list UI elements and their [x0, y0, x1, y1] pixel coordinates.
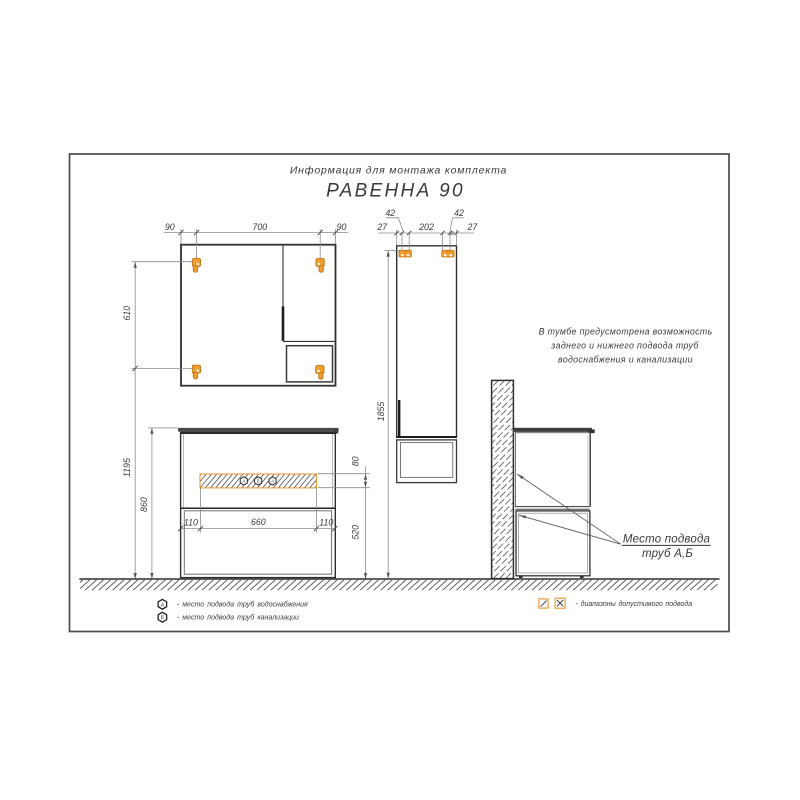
svg-text:- место подвода труб водоснаб: - место подвода труб водоснабжения [177, 601, 308, 609]
svg-text:610: 610 [122, 306, 132, 321]
svg-text:42: 42 [454, 208, 464, 218]
svg-text:- место подвода труб канализа: - место подвода труб канализации [177, 614, 299, 622]
svg-text:заднего и нижнего подвода труб: заднего и нижнего подвода труб [550, 340, 699, 350]
svg-text:520: 520 [351, 525, 361, 540]
svg-text:труб А,Б: труб А,Б [642, 548, 693, 560]
svg-text:Б: Б [161, 615, 165, 621]
svg-text:860: 860 [139, 497, 149, 512]
svg-text:110: 110 [184, 517, 198, 527]
svg-text:РАВЕННА 90: РАВЕННА 90 [326, 181, 465, 202]
svg-text:В тумбе предусмотрена возможно: В тумбе предусмотрена возможность [539, 327, 713, 337]
svg-text:27: 27 [467, 222, 479, 232]
svg-text:202: 202 [418, 222, 434, 232]
svg-text:700: 700 [252, 222, 267, 232]
svg-text:Информация для монтажа комплек: Информация для монтажа комплекта [290, 165, 507, 177]
svg-text:27: 27 [376, 222, 388, 232]
svg-text:А: А [241, 479, 245, 484]
svg-text:Место подвода: Место подвода [623, 534, 710, 546]
svg-text:110: 110 [319, 517, 333, 527]
svg-text:1195: 1195 [122, 458, 132, 477]
svg-text:42: 42 [385, 208, 395, 218]
svg-text:1855: 1855 [376, 402, 386, 422]
svg-text:660: 660 [251, 517, 266, 527]
svg-text:90: 90 [165, 222, 175, 232]
svg-text:- диапазоны допустимого подво: - диапазоны допустимого подвода [576, 600, 693, 608]
svg-text:Б: Б [257, 479, 260, 484]
svg-text:водоснабжения и канализации: водоснабжения и канализации [558, 354, 693, 364]
svg-text:А: А [270, 479, 274, 484]
svg-text:90: 90 [337, 222, 347, 232]
svg-text:А: А [160, 602, 165, 608]
svg-text:80: 80 [351, 456, 361, 466]
